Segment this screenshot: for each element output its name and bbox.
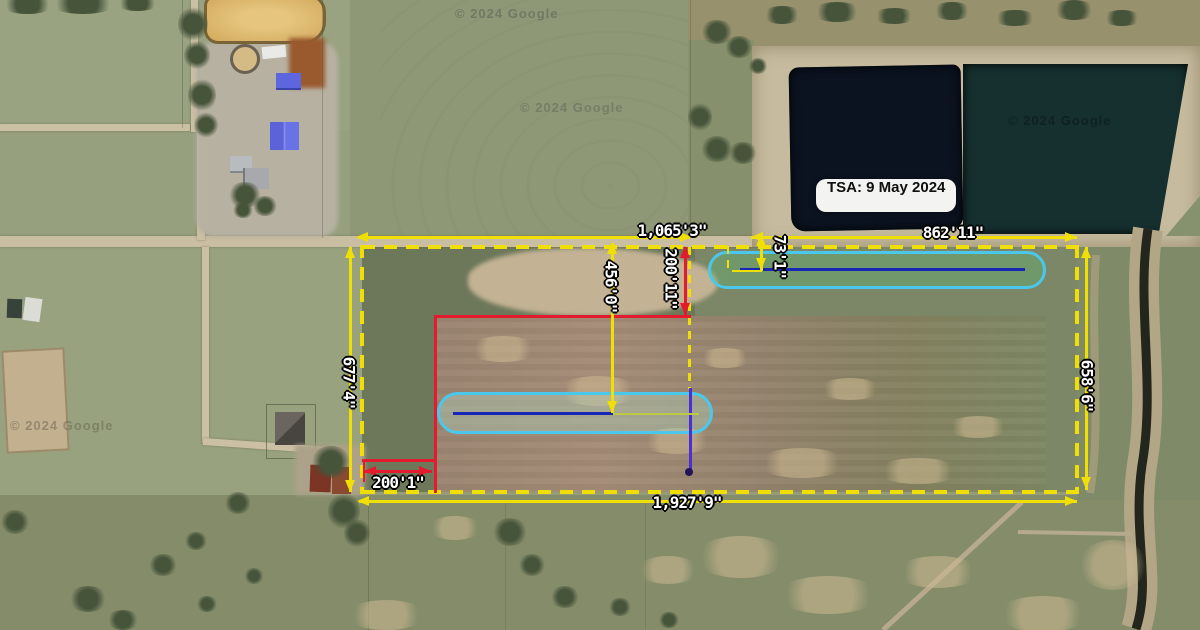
round-pen	[230, 44, 260, 74]
arrowhead	[607, 401, 617, 413]
mowing-rings	[380, 0, 700, 238]
tree-blob	[932, 2, 972, 20]
google-attribution: © 2024 Google	[455, 6, 559, 21]
measurement-label-west: 677'4"	[340, 333, 359, 433]
arrowhead	[680, 303, 690, 315]
boundary-west-dashed	[360, 245, 364, 494]
tree-blob	[748, 58, 768, 74]
measurement-label-gap: 73'1"	[771, 207, 790, 307]
tree-blob	[492, 518, 528, 546]
soil-patch	[946, 416, 1010, 438]
pond-east	[963, 64, 1188, 234]
arrowhead	[1065, 496, 1077, 506]
soil-patch	[468, 336, 538, 362]
tree-blob	[728, 142, 758, 164]
tree-blob	[244, 568, 264, 584]
gap-extension-dashed	[727, 246, 729, 271]
tree-blob	[1052, 0, 1096, 20]
tree-blob	[0, 510, 30, 534]
soil-patch	[698, 348, 752, 368]
arrowhead	[1081, 246, 1091, 258]
red-outline-west	[434, 315, 437, 493]
gap-extension-line	[732, 270, 762, 272]
soil-patch	[1078, 540, 1148, 590]
farm-building-white	[261, 45, 286, 59]
arrowhead	[680, 246, 690, 258]
tree-blob	[688, 102, 712, 132]
farm-building-blue-large	[270, 122, 299, 150]
tree-blob	[518, 554, 546, 576]
road-west	[0, 124, 190, 131]
shed-white	[22, 297, 42, 322]
measurement-label-red-horizontal: 200'1"	[328, 473, 468, 492]
shed-dark	[7, 299, 23, 319]
tree-blob	[148, 554, 178, 576]
google-attribution: © 2024 Google	[10, 418, 114, 433]
arrowhead	[756, 258, 766, 270]
google-attribution: © 2024 Google	[520, 100, 624, 115]
tree-blob	[184, 532, 208, 550]
tsa-date-badge: TSA: 9 May 2024	[816, 179, 956, 212]
tree-blob	[252, 196, 278, 216]
measurement-label-interior-vertical: 456'0"	[602, 237, 621, 337]
tree-blob	[194, 112, 218, 138]
arrowhead	[1081, 477, 1091, 489]
tree-blob	[184, 40, 210, 70]
tree-blob	[188, 78, 216, 112]
runway-extension-line-west	[613, 413, 699, 415]
tree-blob	[68, 586, 108, 612]
arrowhead	[756, 234, 766, 246]
measurement-label-south: 1,927'9"	[607, 493, 767, 512]
arrowhead	[1065, 232, 1077, 242]
red-outline-notch	[362, 459, 437, 462]
runway-centerline-west	[453, 412, 613, 415]
purple-marker-line	[689, 388, 692, 474]
tree-blob	[762, 6, 802, 24]
measurement-label-east: 658'6"	[1078, 336, 1097, 436]
measurement-label-north-east: 862'11"	[873, 223, 1033, 242]
tree-blob	[872, 8, 916, 24]
tree-blob	[550, 586, 580, 608]
arrowhead	[345, 246, 355, 258]
map-viewport[interactable]: © 2024 Google © 2024 Google © 2024 Googl…	[0, 0, 1200, 630]
house-southeast	[275, 412, 305, 445]
tree-blob	[232, 202, 254, 218]
purple-marker-end	[685, 468, 693, 476]
soil-patch	[818, 378, 882, 400]
tree-blob	[992, 10, 1038, 26]
soil-patch	[636, 556, 700, 584]
tree-blob	[608, 598, 632, 616]
tree-blob	[224, 492, 252, 514]
tree-blob	[658, 612, 680, 628]
soil-patch	[346, 600, 426, 630]
soil-patch	[694, 536, 788, 578]
tree-blob	[344, 518, 370, 548]
road-south-lane	[202, 247, 209, 443]
fence-line	[322, 0, 323, 238]
soil-patch	[776, 576, 880, 614]
measurement-label-red-vertical: 200'11"	[662, 229, 681, 329]
tree-blob	[724, 36, 754, 58]
arrowhead	[357, 496, 369, 506]
google-attribution: © 2024 Google	[1008, 113, 1112, 128]
tree-blob	[812, 2, 862, 22]
soil-patch	[996, 596, 1090, 630]
tree-blob	[106, 610, 140, 630]
division-dashed-line	[688, 247, 691, 389]
soil-patch	[756, 448, 848, 478]
tree-blob	[196, 596, 218, 612]
arrowhead	[356, 232, 368, 242]
boundary-north-dashed	[362, 245, 1077, 249]
soil-patch	[876, 458, 960, 484]
tree-blob	[178, 6, 208, 42]
tree-blob	[1102, 10, 1142, 26]
red-outline-north	[434, 315, 691, 318]
farm-building-blue-small	[276, 73, 301, 90]
soil-patch	[896, 556, 980, 588]
corral-pen	[1, 347, 69, 453]
soil-patch	[428, 516, 482, 540]
